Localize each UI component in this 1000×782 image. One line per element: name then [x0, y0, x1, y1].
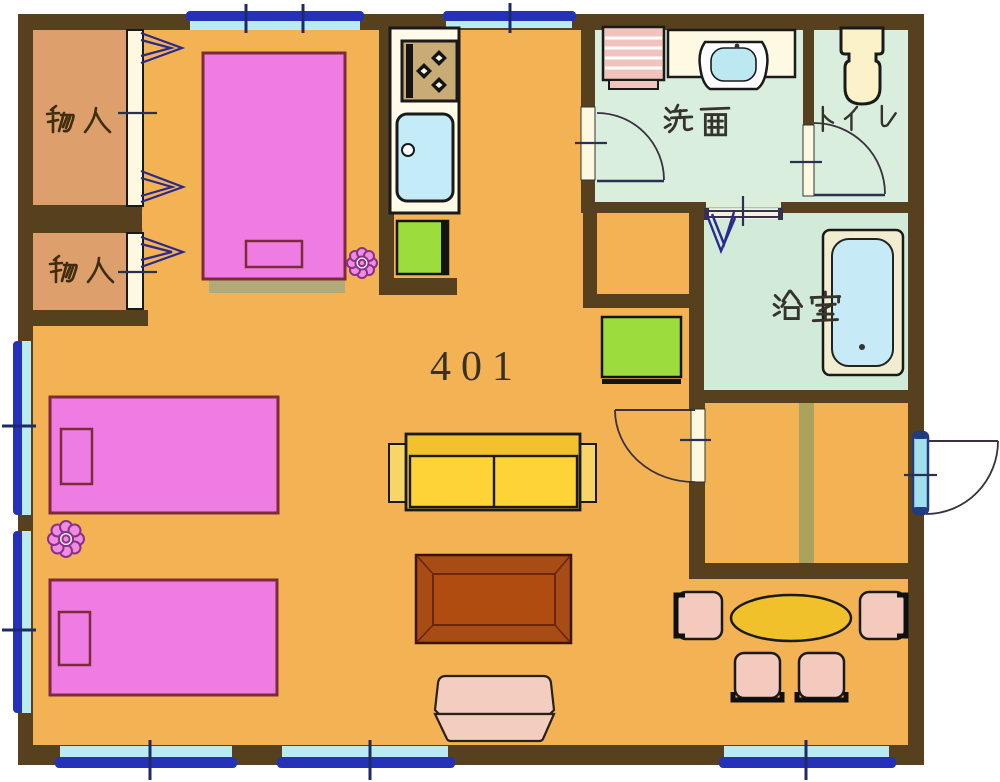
- svg-text:401: 401: [430, 344, 523, 390]
